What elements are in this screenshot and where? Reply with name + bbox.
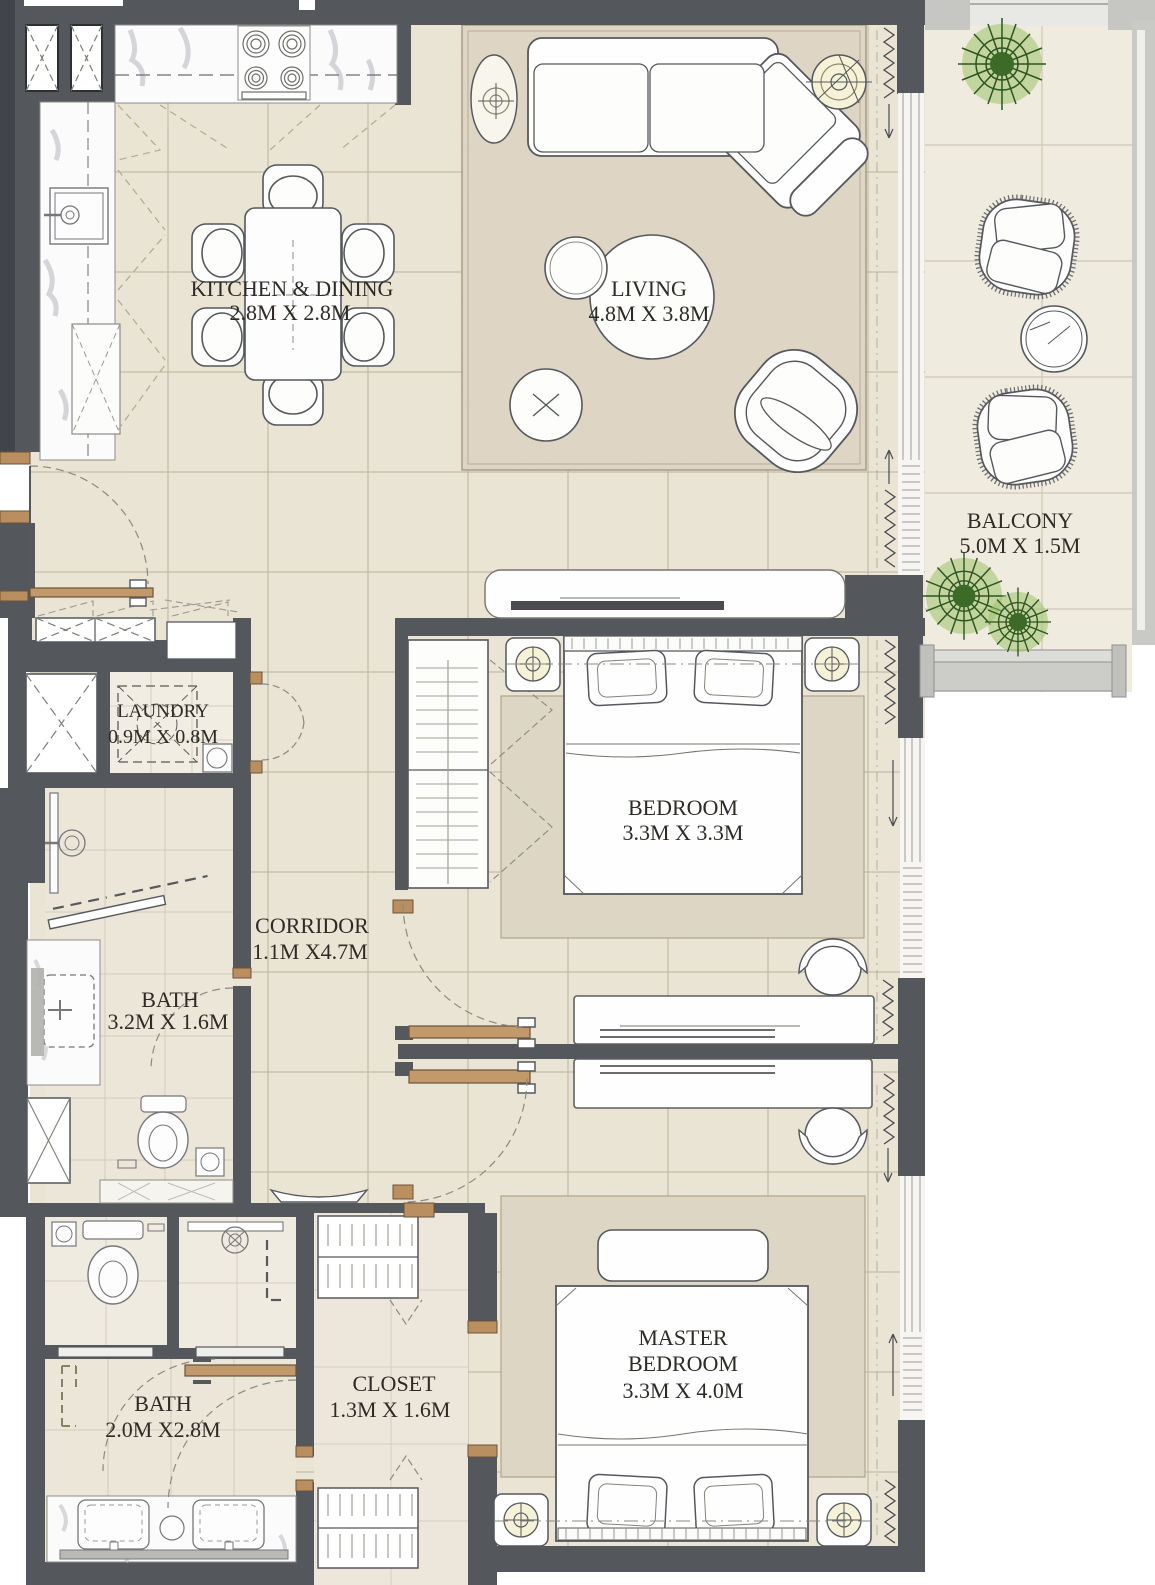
svg-text:4.8M X 3.8M: 4.8M X 3.8M bbox=[588, 301, 709, 326]
svg-text:BEDROOM: BEDROOM bbox=[628, 795, 738, 820]
svg-text:0.9M X 0.8M: 0.9M X 0.8M bbox=[108, 726, 218, 748]
svg-text:5.0M X 1.5M: 5.0M X 1.5M bbox=[959, 533, 1080, 558]
svg-text:1.1M X4.7M: 1.1M X4.7M bbox=[252, 939, 368, 964]
svg-text:BEDROOM: BEDROOM bbox=[628, 1351, 738, 1376]
svg-text:CORRIDOR: CORRIDOR bbox=[255, 913, 369, 938]
svg-text:2.8M X 2.8M: 2.8M X 2.8M bbox=[229, 300, 350, 325]
svg-text:LAUNDRY: LAUNDRY bbox=[117, 701, 209, 722]
svg-text:3.3M X 4.0M: 3.3M X 4.0M bbox=[622, 1378, 743, 1403]
svg-text:3.2M X 1.6M: 3.2M X 1.6M bbox=[107, 1009, 228, 1034]
svg-text:MASTER: MASTER bbox=[638, 1325, 728, 1350]
svg-text:1.3M X 1.6M: 1.3M X 1.6M bbox=[329, 1397, 450, 1422]
svg-text:2.0M X2.8M: 2.0M X2.8M bbox=[105, 1417, 221, 1442]
svg-text:LIVING: LIVING bbox=[611, 276, 687, 301]
svg-text:BALCONY: BALCONY bbox=[967, 508, 1073, 533]
svg-text:KITCHEN & DINING: KITCHEN & DINING bbox=[191, 276, 394, 301]
svg-text:BATH: BATH bbox=[134, 1391, 192, 1416]
svg-text:3.3M X 3.3M: 3.3M X 3.3M bbox=[622, 820, 743, 845]
svg-text:CLOSET: CLOSET bbox=[352, 1371, 436, 1396]
